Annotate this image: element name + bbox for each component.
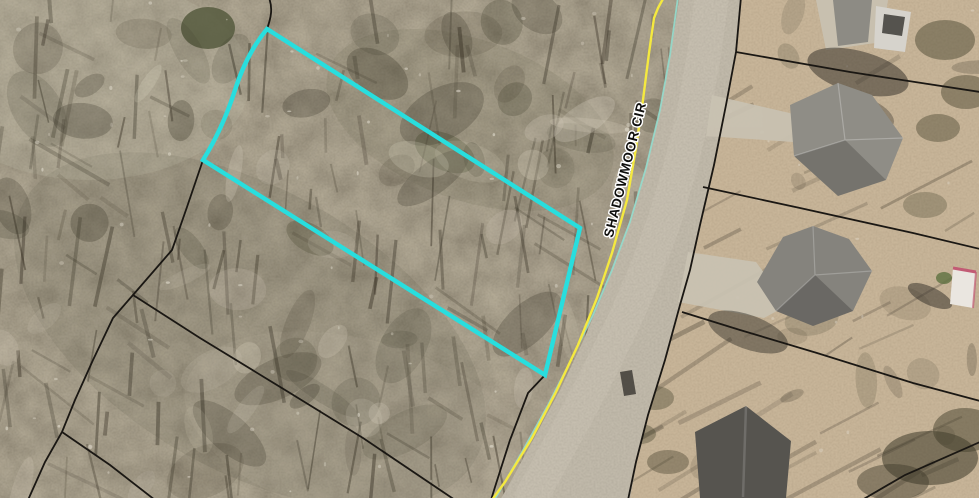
house-roof	[833, 0, 872, 46]
shed-roof	[950, 268, 976, 308]
parcel-map-viewport: SHADOWMOOR CIR	[0, 0, 979, 498]
bush	[936, 272, 952, 284]
rooftop-unit	[882, 14, 905, 36]
aerial-map-image: SHADOWMOOR CIR	[0, 0, 979, 498]
